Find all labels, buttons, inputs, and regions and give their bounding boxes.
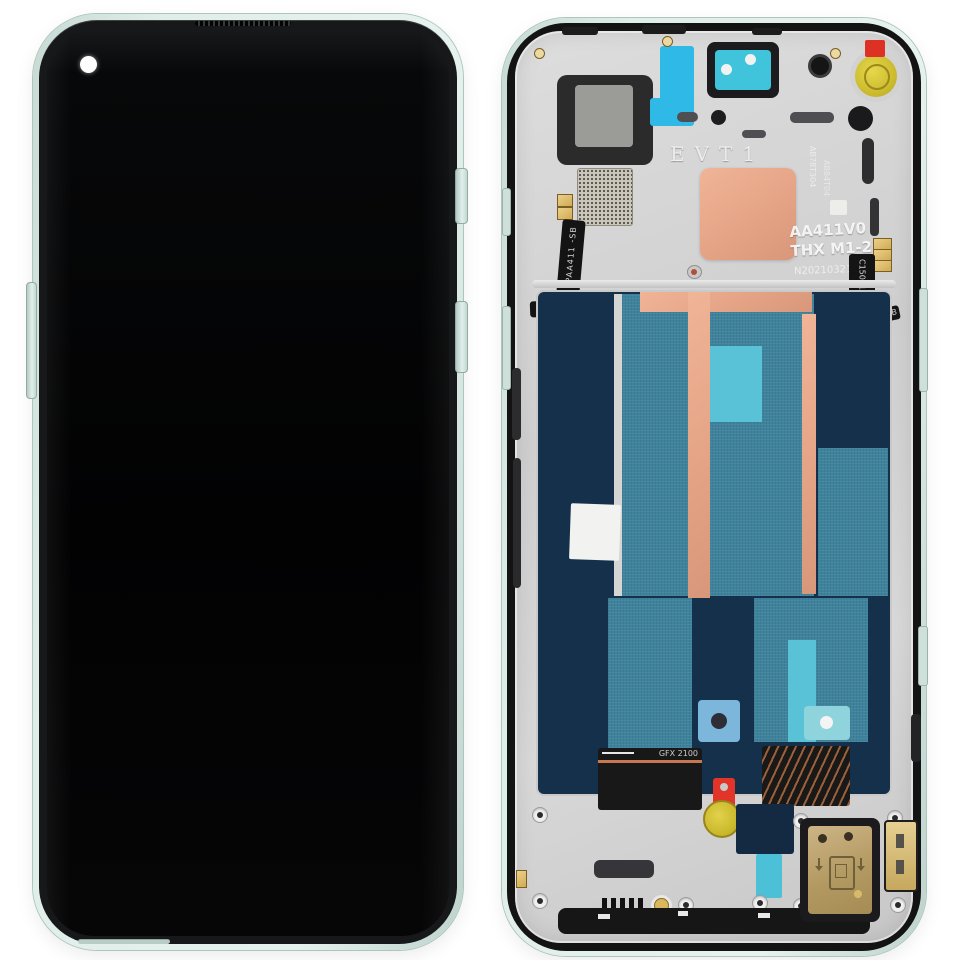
- copper-tape-strip: [802, 314, 816, 594]
- camera-lens-hole: [721, 64, 732, 75]
- edge-button-cutout: [919, 288, 928, 392]
- cyan-film-tail: [756, 854, 782, 898]
- sim-reader-plate: [808, 826, 872, 914]
- edge-channel: [512, 368, 521, 440]
- down-arrow-icon: [818, 858, 820, 867]
- gold-screw: [662, 36, 673, 47]
- screw-hole-copper: [687, 265, 702, 279]
- power-button: [455, 301, 468, 373]
- contact-tab: [758, 913, 770, 918]
- left-flex-vertical-code: PAA411 -SB: [564, 226, 578, 283]
- tab-hole: [720, 783, 728, 791]
- etched-vertical-code-a: AB78T304: [808, 146, 817, 230]
- contact-tab: [678, 911, 688, 916]
- camera-foam-window: [575, 85, 633, 147]
- edge-button-cutout: [502, 306, 511, 390]
- sim-plate-hole: [818, 834, 827, 843]
- patch-hole: [820, 716, 833, 729]
- graphite-film-panel: [818, 448, 888, 596]
- cyan-film-patch: [710, 346, 762, 422]
- white-chip: [830, 200, 847, 215]
- connector-mark: [896, 860, 904, 874]
- gold-contact-pad: [873, 260, 892, 272]
- metal-ridge: [532, 280, 896, 288]
- copper-tape-bar: [640, 292, 812, 312]
- copper-thermal-pad: [700, 168, 796, 260]
- sim-card-icon: [829, 856, 855, 890]
- yellow-seal-ring: [864, 64, 890, 90]
- navy-foam-pad: [736, 804, 794, 854]
- screw-hole-center: [691, 269, 697, 275]
- bottom-flex-left: GFX 2100: [598, 748, 702, 810]
- vent-slot: [790, 112, 834, 123]
- alert-slider-button: [455, 168, 468, 224]
- bottom-flex-code: GFX 2100: [659, 749, 698, 758]
- edge-button-cutout: [502, 188, 511, 236]
- sim-reader-housing: [800, 818, 880, 922]
- edge-channel: [513, 458, 521, 588]
- vent-slot: [677, 112, 698, 122]
- sim-tray-slot: [78, 939, 170, 944]
- graphite-film-panel: [608, 598, 692, 760]
- gold-screw: [534, 48, 545, 59]
- vent-slot: [862, 138, 874, 184]
- antenna-bracket: [562, 27, 598, 35]
- edge-button-cutout: [918, 626, 928, 686]
- camera-foam-gasket: [557, 75, 653, 165]
- product-photo: EVT1 AB78T304 AB84T04 AA411V0 THX M1-2 N…: [0, 0, 960, 960]
- volume-button: [26, 282, 37, 399]
- vent-slot: [870, 198, 879, 236]
- screw: [532, 893, 548, 909]
- red-pull-sticker: [865, 40, 885, 57]
- phone-front-view: [33, 14, 463, 950]
- phone-back-view: EVT1 AB78T304 AB84T04 AA411V0 THX M1-2 N…: [502, 18, 926, 956]
- gold-contact-pad: [557, 207, 573, 220]
- earpiece-speaker-grill: [195, 21, 291, 26]
- sim-chip-icon: [835, 864, 847, 878]
- camera-bracket: [707, 42, 779, 98]
- contact-tab: [598, 914, 610, 919]
- copper-tape-strip: [688, 292, 710, 598]
- antenna-bracket: [642, 25, 686, 34]
- etched-stage-code: EVT1: [670, 142, 765, 166]
- gold-dot: [854, 890, 862, 898]
- edge-channel: [911, 714, 921, 762]
- front-screen: [47, 28, 449, 936]
- yellow-lens-seal: [855, 55, 897, 97]
- camera-lens-hole: [745, 54, 756, 65]
- cyan-patch: [804, 706, 850, 740]
- vent-slot: [594, 860, 654, 878]
- vent-slot: [742, 130, 766, 138]
- gold-contact-pad: [557, 194, 573, 207]
- bottom-flex-right: [762, 746, 850, 806]
- graphite-film-panel: [622, 294, 814, 596]
- connector-mark: [896, 834, 904, 848]
- gold-edge-contact: [516, 870, 527, 888]
- screw-hole: [711, 110, 726, 125]
- flex-white-line: [602, 752, 634, 754]
- mic-port: [808, 54, 832, 78]
- down-arrow-icon: [860, 858, 862, 867]
- sim-plate-hole: [844, 832, 853, 841]
- antenna-bracket: [752, 28, 782, 35]
- screw: [890, 897, 906, 913]
- front-camera-hole: [80, 56, 97, 73]
- copper-trace: [598, 760, 702, 763]
- gold-screw: [830, 48, 841, 59]
- speaker-mesh: [577, 168, 633, 226]
- screw: [532, 807, 548, 823]
- patch-hole: [711, 713, 727, 729]
- white-label: [569, 503, 621, 561]
- blue-patch: [698, 700, 740, 742]
- gold-board-connector: [884, 820, 918, 892]
- screw-hole: [848, 106, 873, 131]
